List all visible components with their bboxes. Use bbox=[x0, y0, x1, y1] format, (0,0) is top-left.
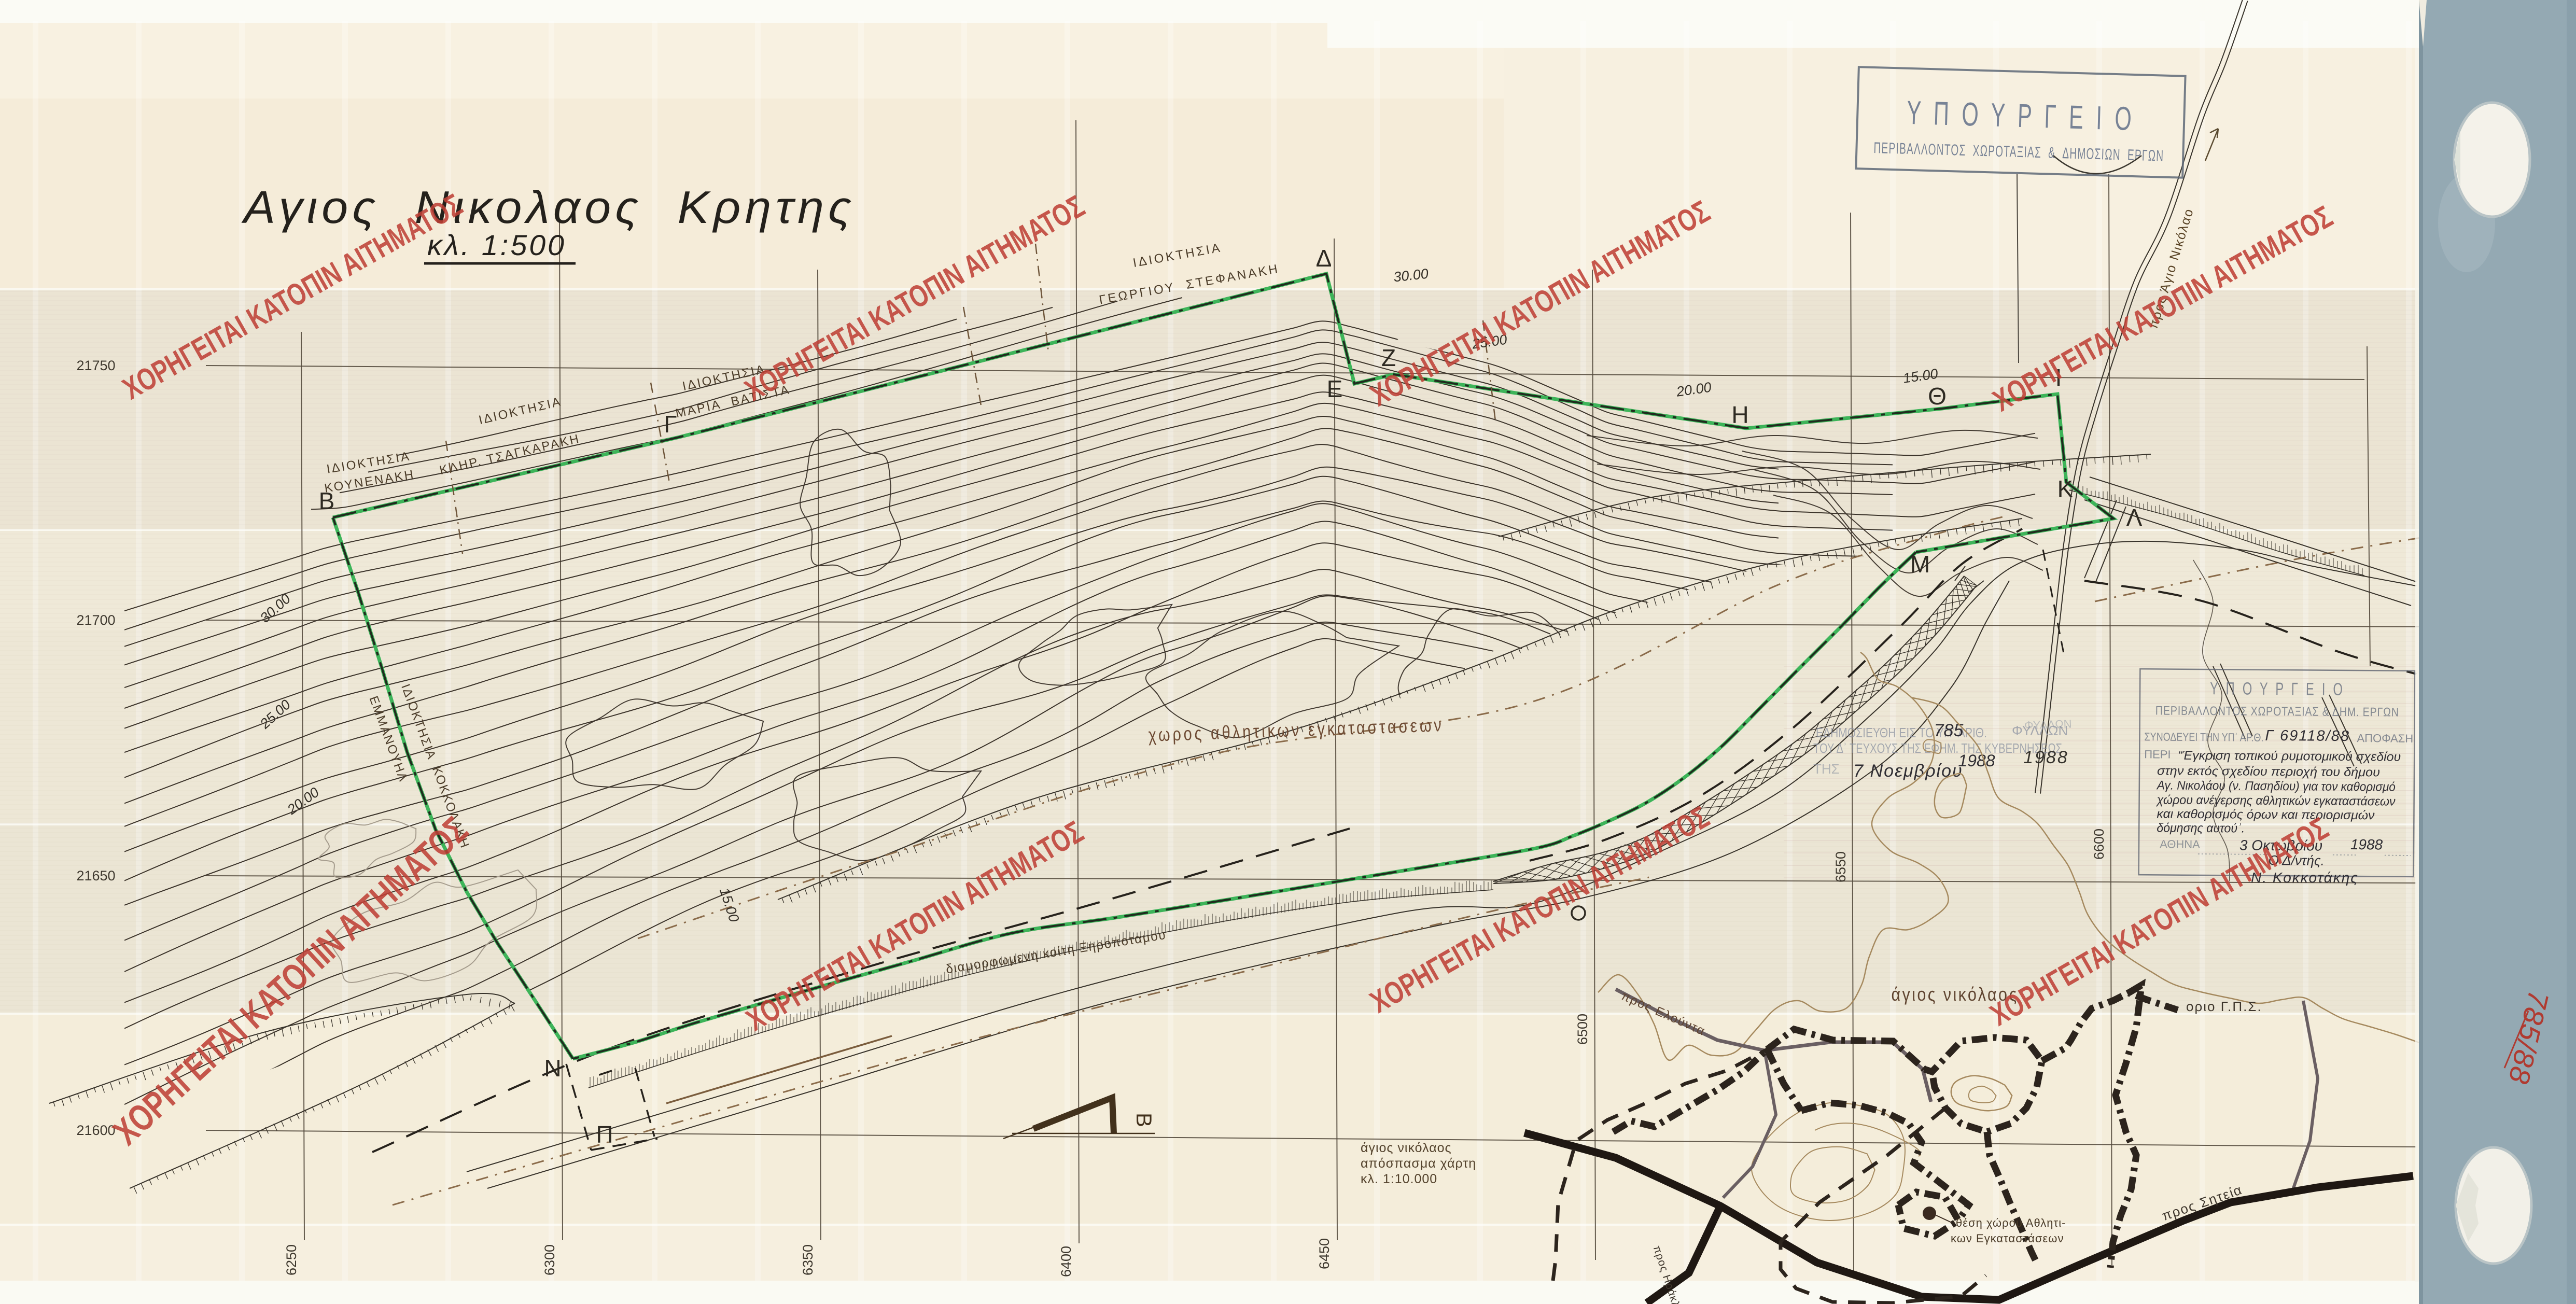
svg-text:ΠΕΡΙΒΑΛΛΟΝΤΟΣ ΧΩΡΟΤΑΞΙΑΣ & ΔΗΜ: ΠΕΡΙΒΑΛΛΟΝΤΟΣ ΧΩΡΟΤΑΞΙΑΣ & ΔΗΜ. ΕΡΓΩΝ bbox=[2155, 704, 2399, 719]
svg-text:M: M bbox=[1910, 551, 1930, 578]
svg-text:απόσπασμα χάρτη: απόσπασμα χάρτη bbox=[1361, 1156, 1476, 1171]
svg-text:H: H bbox=[1731, 401, 1748, 428]
svg-text:ΣΥΝΟΔΕΥΕΙ ΤΗΝ ΥΠʾ ΑΡ.Θ.: ΣΥΝΟΔΕΥΕΙ ΤΗΝ ΥΠʾ ΑΡ.Θ. bbox=[2144, 730, 2263, 744]
svg-text:οριο Γ.Π.Σ.: οριο Γ.Π.Σ. bbox=[2186, 999, 2262, 1014]
svg-text:Γ: Γ bbox=[664, 411, 677, 438]
svg-text:κλ. 1:10.000: κλ. 1:10.000 bbox=[1361, 1172, 1437, 1186]
svg-text:6350: 6350 bbox=[800, 1244, 816, 1275]
svg-text:Υ Π Ο Υ Ρ Γ Ε Ι Ο: Υ Π Ο Υ Ρ Γ Ε Ι Ο bbox=[1906, 94, 2135, 137]
svg-text:1988: 1988 bbox=[2023, 748, 2069, 767]
svg-text:6600: 6600 bbox=[2091, 829, 2107, 860]
svg-text:ΠΕΡΙ: ΠΕΡΙ bbox=[2144, 748, 2171, 761]
svg-text:ΦΥΛΛΩΝ: ΦΥΛΛΩΝ bbox=[2024, 717, 2072, 732]
svg-text:άγιος νικόλαος: άγιος νικόλαος bbox=[1361, 1141, 1452, 1155]
svg-text:ΑΘΗΝΑ: ΑΘΗΝΑ bbox=[2160, 837, 2200, 851]
svg-text:κων Εγκαταστάσεων: κων Εγκαταστάσεων bbox=[1951, 1232, 2064, 1245]
svg-text:Γ 69118/88: Γ 69118/88 bbox=[2265, 727, 2350, 745]
svg-text:21750: 21750 bbox=[76, 358, 115, 373]
svg-text:B: B bbox=[1132, 1113, 1156, 1127]
svg-text:Θ: Θ bbox=[1928, 383, 1947, 410]
svg-text:Υ Π Ο Υ Ρ Γ Ε Ι Ο: Υ Π Ο Υ Ρ Γ Ε Ι Ο bbox=[2210, 679, 2345, 699]
svg-text:χώρου ανέγερσης αθλητικών εγκα: χώρου ανέγερσης αθλητικών εγκαταστάσεων bbox=[2156, 793, 2396, 808]
svg-text:Δ: Δ bbox=[1316, 245, 1332, 272]
svg-text:και καθορισμός όρων και περιορ: και καθορισμός όρων και περιορισμών bbox=[2157, 807, 2374, 822]
svg-text:6400: 6400 bbox=[1058, 1246, 1074, 1277]
svg-text:Αγ. Νικολάου (ν. Πασηδίου) για: Αγ. Νικολάου (ν. Πασηδίου) για τον καθορ… bbox=[2156, 778, 2396, 794]
svg-text:“Έγκριση τοπικού ρυμοτομικού σ: “Έγκριση τοπικού ρυμοτομικού σχεδίου bbox=[2178, 749, 2401, 764]
svg-text:στην εκτός σχεδίου περιοχή του: στην εκτός σχεδίου περιοχή του δήμου bbox=[2157, 764, 2380, 779]
svg-text:Λ: Λ bbox=[2126, 504, 2143, 531]
svg-text:Π: Π bbox=[596, 1121, 613, 1148]
svg-text:6500: 6500 bbox=[1575, 1014, 1590, 1045]
svg-text:21650: 21650 bbox=[76, 868, 115, 884]
svg-text:6550: 6550 bbox=[1833, 851, 1849, 882]
svg-text:N: N bbox=[544, 1055, 561, 1082]
svg-text:K: K bbox=[2057, 475, 2074, 502]
svg-text:6450: 6450 bbox=[1317, 1238, 1332, 1269]
svg-text:1988: 1988 bbox=[1958, 751, 1995, 770]
svg-text:6300: 6300 bbox=[542, 1244, 557, 1275]
svg-text:1988: 1988 bbox=[2350, 836, 2383, 852]
svg-text:6250: 6250 bbox=[284, 1244, 299, 1275]
svg-text:θέση χώρου Αθλητι-: θέση χώρου Αθλητι- bbox=[1956, 1216, 2066, 1229]
svg-text:Αγιος Νικολαος Κρητης: Αγιος Νικολαος Κρητης bbox=[241, 181, 856, 233]
svg-text:ΑΠΟΦΑΣΗ: ΑΠΟΦΑΣΗ bbox=[2357, 732, 2413, 745]
svg-text:δόμησης αυτούʾ.: δόμησης αυτούʾ. bbox=[2157, 821, 2245, 835]
svg-text:κλ. 1:500: κλ. 1:500 bbox=[427, 229, 566, 261]
svg-text:E: E bbox=[1327, 375, 1343, 402]
svg-text:ΤΗΣ: ΤΗΣ bbox=[1813, 761, 1840, 777]
svg-text:21700: 21700 bbox=[76, 612, 115, 628]
